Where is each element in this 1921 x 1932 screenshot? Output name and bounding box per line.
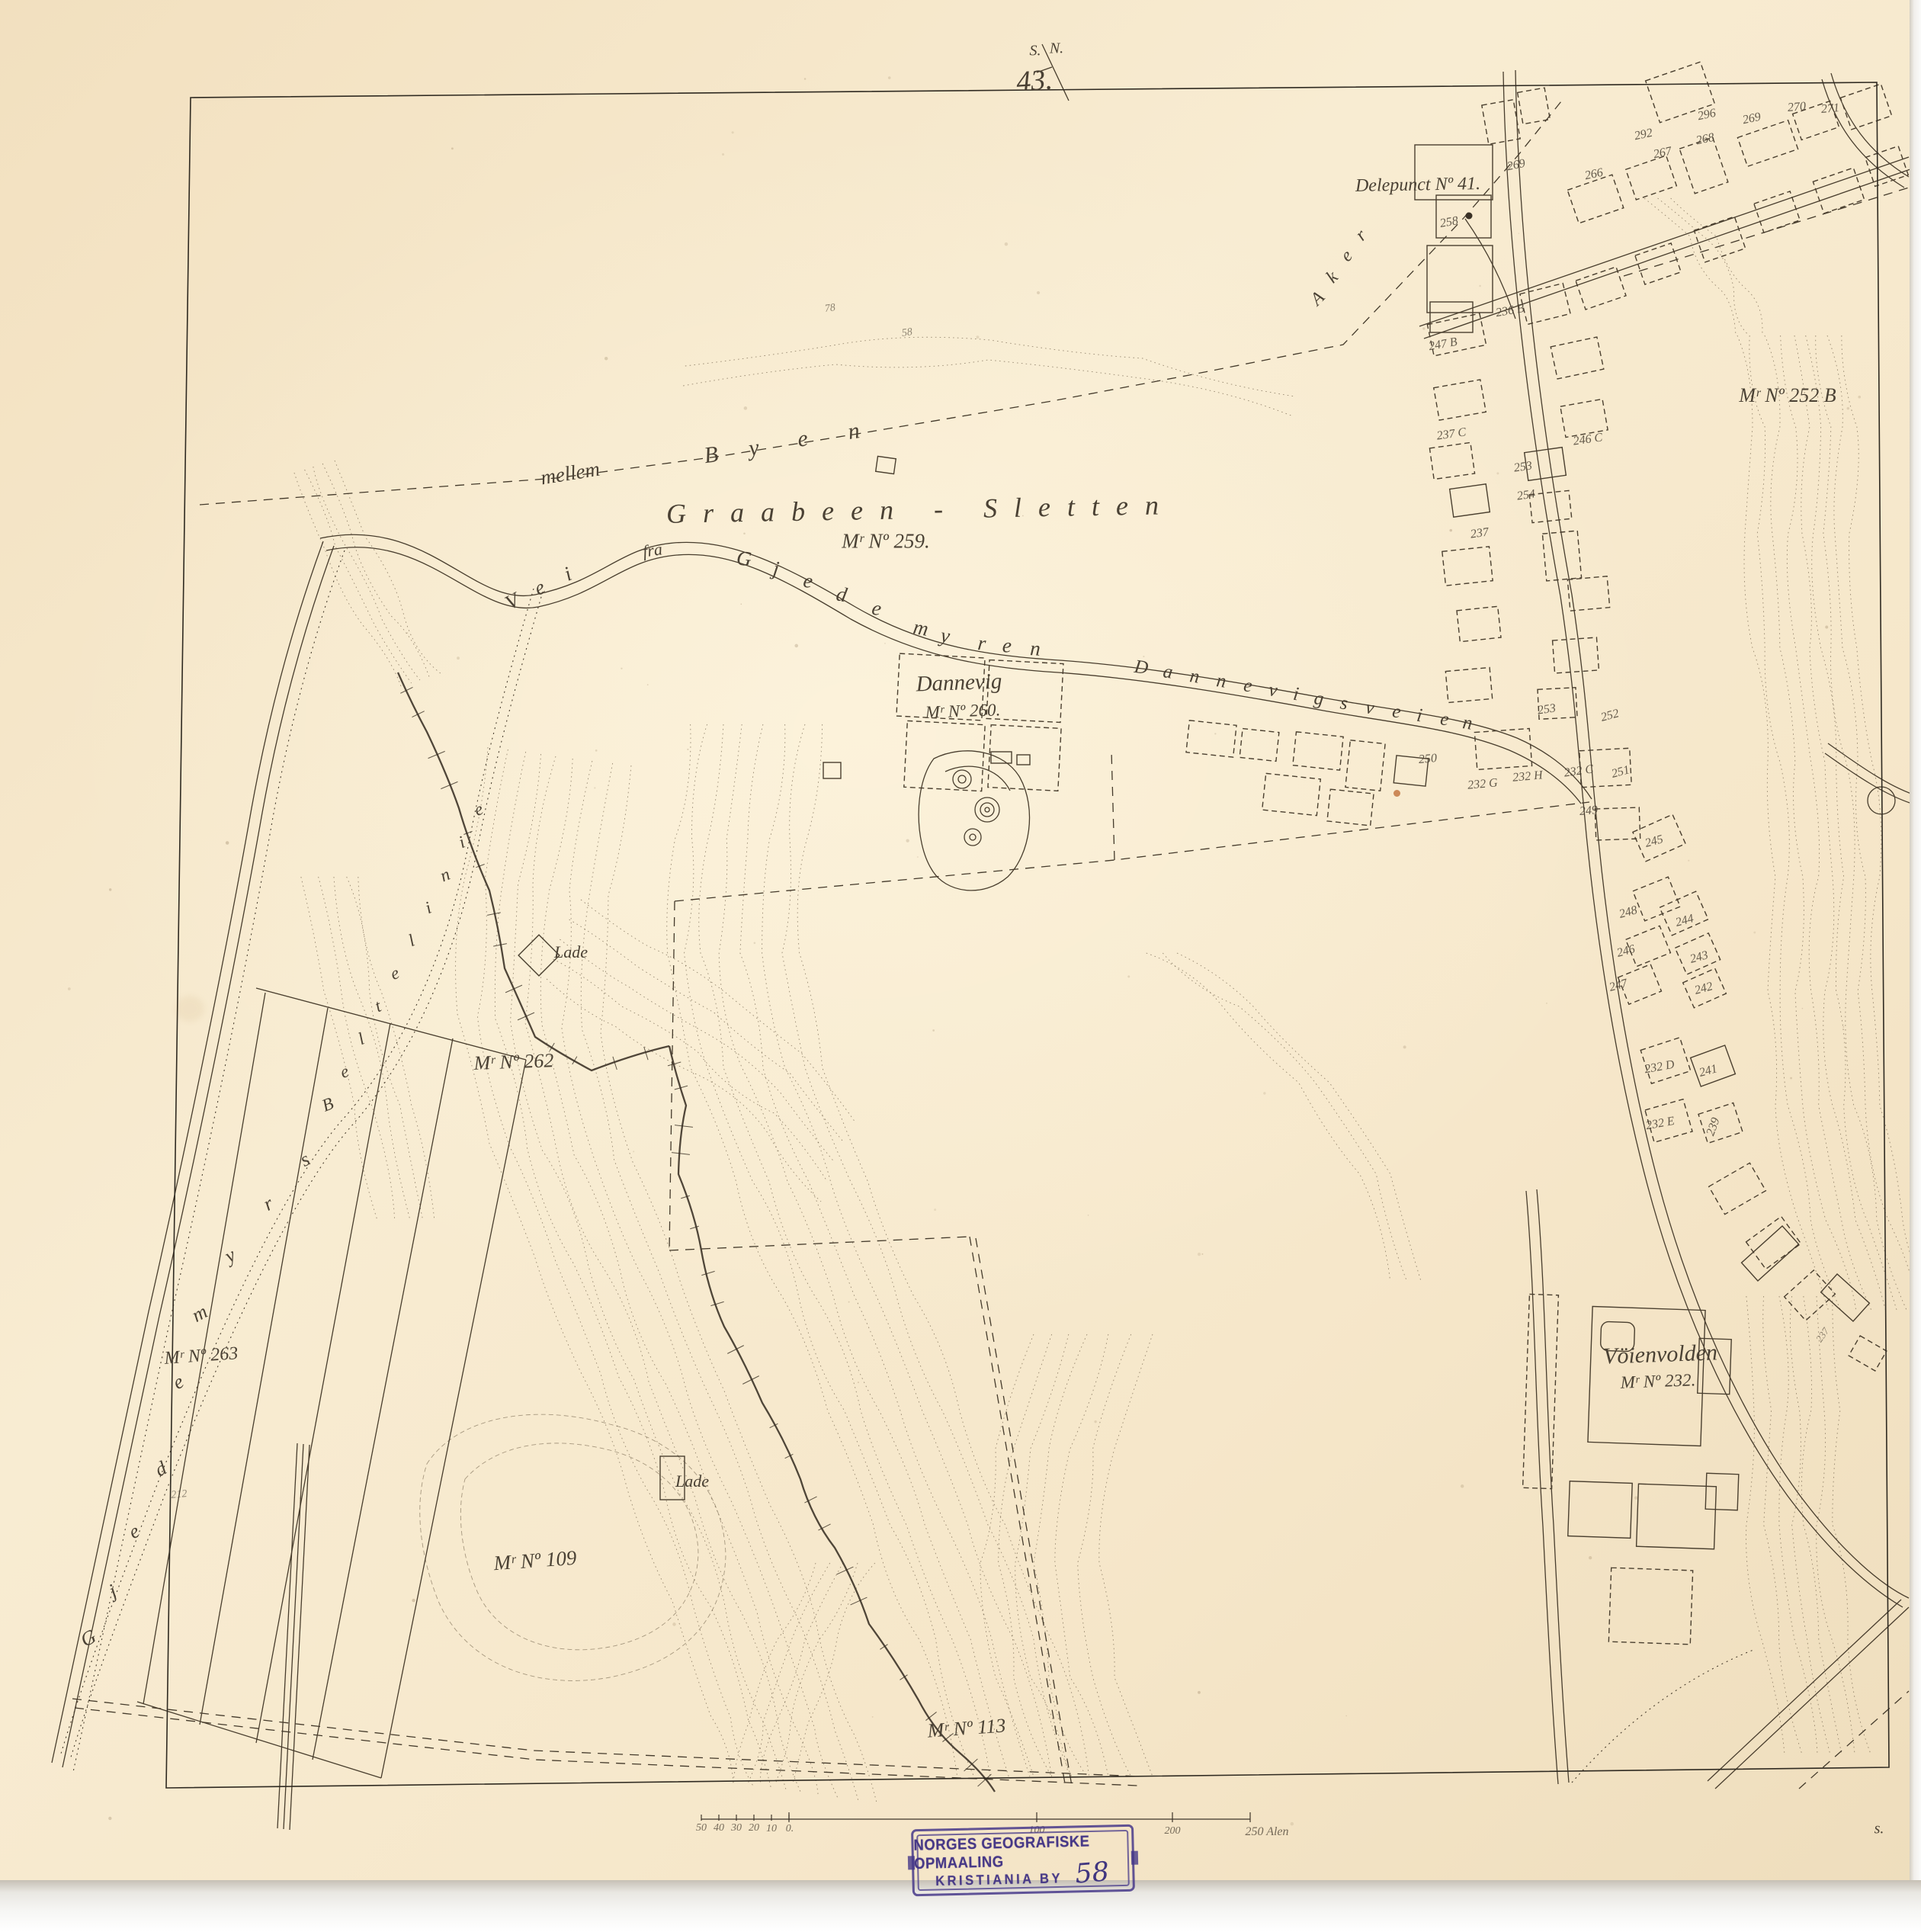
paper-speck: [109, 888, 111, 891]
building: [1327, 789, 1374, 826]
paper-speck: [672, 1622, 675, 1626]
building: [1445, 668, 1492, 703]
paper-speck: [1143, 656, 1144, 657]
building: [1821, 1274, 1870, 1321]
paper-speck: [1022, 515, 1024, 517]
contour-line: [685, 337, 1295, 396]
building: [1518, 88, 1551, 124]
contour-line: [540, 759, 818, 1796]
paper-speck: [1198, 1691, 1201, 1694]
contour-line: [601, 765, 877, 1802]
paper-speck: [1753, 932, 1756, 934]
building: [1568, 1481, 1632, 1539]
paper-speck: [932, 1029, 935, 1032]
building: [1600, 1321, 1634, 1352]
contour-line: [511, 754, 787, 1791]
building: [1186, 720, 1236, 757]
contour-line: [1644, 198, 1736, 335]
stream-line: [398, 672, 669, 1070]
stamp-ornament-right: [1131, 1851, 1138, 1865]
contour-line: [477, 749, 753, 1786]
building: [1430, 302, 1473, 332]
contour-line: [313, 467, 420, 680]
paper-speck: [804, 78, 807, 80]
building: [991, 752, 1012, 763]
contour-line: [685, 724, 974, 1776]
paper-speck: [858, 1382, 859, 1383]
contour-line: [1801, 1296, 1841, 1754]
paper-speck: [1842, 1026, 1844, 1028]
paper-speck: [722, 153, 724, 156]
contour-line: [335, 461, 441, 674]
building: [1675, 933, 1720, 974]
building: [1553, 637, 1599, 673]
delepunct-dot: [1466, 213, 1473, 220]
building: [1694, 217, 1745, 262]
building: [1560, 399, 1608, 437]
contour-line: [1015, 1334, 1069, 1776]
building: [1679, 137, 1728, 194]
contour-line: [719, 724, 1009, 1776]
building: [1691, 1045, 1736, 1086]
building: [1640, 1038, 1691, 1083]
paper-speck: [605, 357, 608, 360]
contour-line: [761, 1563, 843, 1784]
building: [1442, 547, 1493, 586]
paper-speck: [884, 643, 886, 644]
paper-speck: [226, 841, 229, 845]
contour-line: [1816, 335, 1907, 1311]
building: [1538, 688, 1577, 720]
paper-speck: [633, 1151, 634, 1152]
paper-speck: [1790, 1077, 1792, 1080]
paper-speck: [872, 1716, 874, 1718]
paper-speck: [1496, 472, 1499, 474]
building: [1709, 1163, 1766, 1214]
building: [1457, 606, 1501, 641]
contour-line: [1806, 335, 1897, 1311]
contour-line: [1794, 335, 1886, 1311]
building: [1525, 448, 1567, 481]
contour-line: [358, 877, 435, 1220]
contour-line: [1765, 335, 1856, 1311]
contour-line: [525, 756, 801, 1793]
paper-speck: [621, 668, 622, 669]
contour-line: [1781, 335, 1872, 1311]
contour-line: [322, 464, 429, 677]
paper-speck: [1688, 860, 1689, 862]
paper-speck: [1858, 396, 1861, 399]
contour-line: [305, 470, 412, 683]
paper-speck: [732, 131, 734, 133]
contour-lines: [294, 198, 1921, 1802]
building: [1393, 756, 1429, 786]
paper-speck: [1291, 1822, 1294, 1826]
paper-speck: [1198, 1253, 1201, 1256]
paper-speck: [1519, 233, 1520, 234]
building: [1742, 1226, 1799, 1281]
building: [1482, 100, 1520, 145]
paper-speck: [1461, 1484, 1464, 1488]
paper-speck: [451, 147, 454, 149]
paper-speck: [1214, 733, 1216, 734]
paper-speck: [108, 1817, 111, 1820]
contour-line: [699, 724, 990, 1776]
building: [1737, 120, 1798, 167]
building: [1595, 807, 1640, 840]
paper-speck: [1449, 529, 1452, 532]
paper-speck: [300, 1497, 302, 1499]
building: [1785, 1270, 1836, 1321]
contour-line: [1147, 953, 1390, 1281]
stamp-sheet-number: 58: [1074, 1857, 1110, 1889]
paper-speck: [1263, 1092, 1265, 1094]
paper-stain: [175, 996, 204, 1022]
contour-line: [1779, 1296, 1817, 1754]
building: [1865, 146, 1909, 187]
contour-line: [793, 1563, 875, 1784]
contour-line: [301, 877, 377, 1220]
contour-line: [1034, 1334, 1087, 1776]
paper-speck: [647, 684, 649, 685]
building: [1608, 1568, 1692, 1645]
paper-speck: [1088, 1215, 1089, 1216]
paper-speck: [1005, 242, 1009, 246]
paper-speck: [1546, 1003, 1547, 1004]
contour-line: [1055, 1334, 1108, 1776]
stream-hachure: [518, 1013, 534, 1020]
stream-hachure: [710, 1301, 723, 1305]
building: [1633, 877, 1680, 921]
paper-speck: [1037, 291, 1040, 294]
contour-line: [456, 747, 733, 1784]
building: [1618, 964, 1662, 1004]
contour-line: [581, 763, 858, 1800]
scale-bar: [701, 1812, 1250, 1822]
building: [876, 456, 896, 473]
building: [1626, 926, 1671, 966]
contour-line: [748, 1563, 830, 1784]
contour-line: [740, 724, 1030, 1776]
paper-speck: [1479, 285, 1481, 287]
paper-speck: [743, 532, 746, 534]
paper-speck: [1201, 1253, 1203, 1255]
paper-speck: [976, 335, 979, 339]
dannevig-garden: [919, 751, 1895, 891]
paper-speck: [1634, 1496, 1638, 1500]
building: [1450, 484, 1490, 517]
scan-edge-right: [1910, 0, 1921, 1880]
building: [1645, 1099, 1692, 1143]
paper-speck: [1127, 975, 1130, 977]
paper-speck: [687, 749, 688, 750]
contour-line: [495, 752, 771, 1789]
building: [1345, 740, 1385, 791]
contour-line: [1737, 335, 1829, 1311]
paper-speck: [406, 632, 408, 634]
contour-line: [782, 724, 1072, 1776]
paper-speck: [934, 1208, 936, 1211]
stamp-line2: KRISTIANIA BY: [935, 1871, 1063, 1890]
building: [1529, 490, 1572, 522]
paper-speck: [744, 406, 748, 410]
building: [1840, 84, 1891, 130]
building: [1637, 1484, 1717, 1549]
building: [1849, 1336, 1887, 1371]
building: [1429, 442, 1474, 479]
city-boundary-line: [200, 101, 1561, 505]
map-linework: [0, 0, 1921, 1932]
building: [1520, 284, 1570, 325]
building: [1415, 145, 1493, 200]
paper-speck: [917, 856, 919, 858]
paper-speck: [594, 787, 595, 788]
building: [1698, 1103, 1743, 1144]
building: [1793, 101, 1839, 140]
paper-speck: [754, 942, 756, 945]
contour-line: [1817, 1296, 1855, 1754]
contour-line: [762, 724, 1052, 1776]
building: [1436, 195, 1491, 238]
paper-speck: [1345, 1715, 1346, 1716]
contour-line: [569, 919, 844, 1142]
contour-line: [1078, 1334, 1131, 1776]
building: [1576, 267, 1626, 310]
paper-speck: [794, 644, 798, 648]
paper-speck: [848, 1301, 850, 1303]
paper-speck: [1589, 1556, 1592, 1559]
building: [1427, 246, 1493, 313]
paper-speck: [906, 839, 909, 842]
contour-line: [347, 877, 423, 1220]
building: [1646, 62, 1715, 123]
contour-line: [1827, 335, 1919, 1311]
survey-stamp: NORGES GEOGRAFISKE OPMAALING KRISTIANIA …: [911, 1824, 1135, 1897]
stream-hachure: [672, 1153, 690, 1155]
buildings: [518, 62, 1908, 1645]
paper-speck: [595, 749, 598, 752]
paper-speck: [740, 603, 742, 605]
contour-line: [1749, 335, 1841, 1311]
building: [1434, 380, 1486, 420]
contour-line: [1163, 953, 1406, 1281]
paper-speck: [1802, 1008, 1804, 1009]
contour-line: [1746, 1296, 1785, 1754]
contour-line: [667, 724, 957, 1776]
contour-line: [581, 900, 855, 1122]
building: [1551, 337, 1604, 379]
contour-line: [1099, 1334, 1153, 1776]
building: [904, 720, 985, 791]
ink-fleck: [1393, 790, 1400, 797]
paper-speck: [1825, 626, 1828, 629]
paper-speck: [457, 656, 460, 660]
stream-line: [669, 1046, 995, 1792]
building: [1567, 175, 1624, 223]
stream-hachure: [675, 1125, 693, 1128]
paper-speck: [1847, 407, 1850, 410]
building: [518, 935, 560, 976]
building: [1262, 773, 1321, 815]
building: [1626, 156, 1677, 200]
paper-speck: [1094, 1420, 1096, 1423]
building: [1588, 1306, 1705, 1446]
paper-speck: [888, 76, 891, 79]
paper-speck: [1422, 327, 1425, 329]
stream: [398, 672, 995, 1792]
paper-speck: [68, 987, 71, 990]
contour-line: [775, 1563, 858, 1784]
building: [1705, 1473, 1739, 1510]
contour-line: [319, 877, 395, 1220]
north-arrow: [1037, 44, 1069, 101]
paper-speck: [412, 1599, 415, 1602]
building: [823, 762, 841, 778]
building: [1474, 729, 1531, 770]
stream-hachure: [505, 985, 522, 993]
building: [1017, 755, 1030, 765]
building: [1293, 732, 1343, 770]
contour-line: [1763, 1296, 1802, 1754]
contour-line: [1177, 953, 1421, 1281]
building: [1240, 729, 1279, 762]
building: [1660, 891, 1708, 936]
building: [1579, 748, 1631, 787]
paper-speck: [162, 1356, 163, 1358]
paper-specks: [68, 76, 1861, 1825]
contour-line: [1671, 198, 1762, 335]
building: [1683, 968, 1727, 1008]
building: [896, 653, 985, 720]
roads: [52, 70, 1913, 1830]
contour-line: [683, 360, 1293, 416]
building: [1523, 1294, 1559, 1488]
paper-speck: [932, 1629, 933, 1629]
contour-line: [553, 959, 827, 1182]
paper-speck: [1028, 1553, 1031, 1556]
stream-hachure: [701, 1271, 714, 1275]
contour-line: [547, 979, 821, 1202]
paper-speck: [1403, 1045, 1406, 1048]
building: [1746, 1216, 1801, 1269]
